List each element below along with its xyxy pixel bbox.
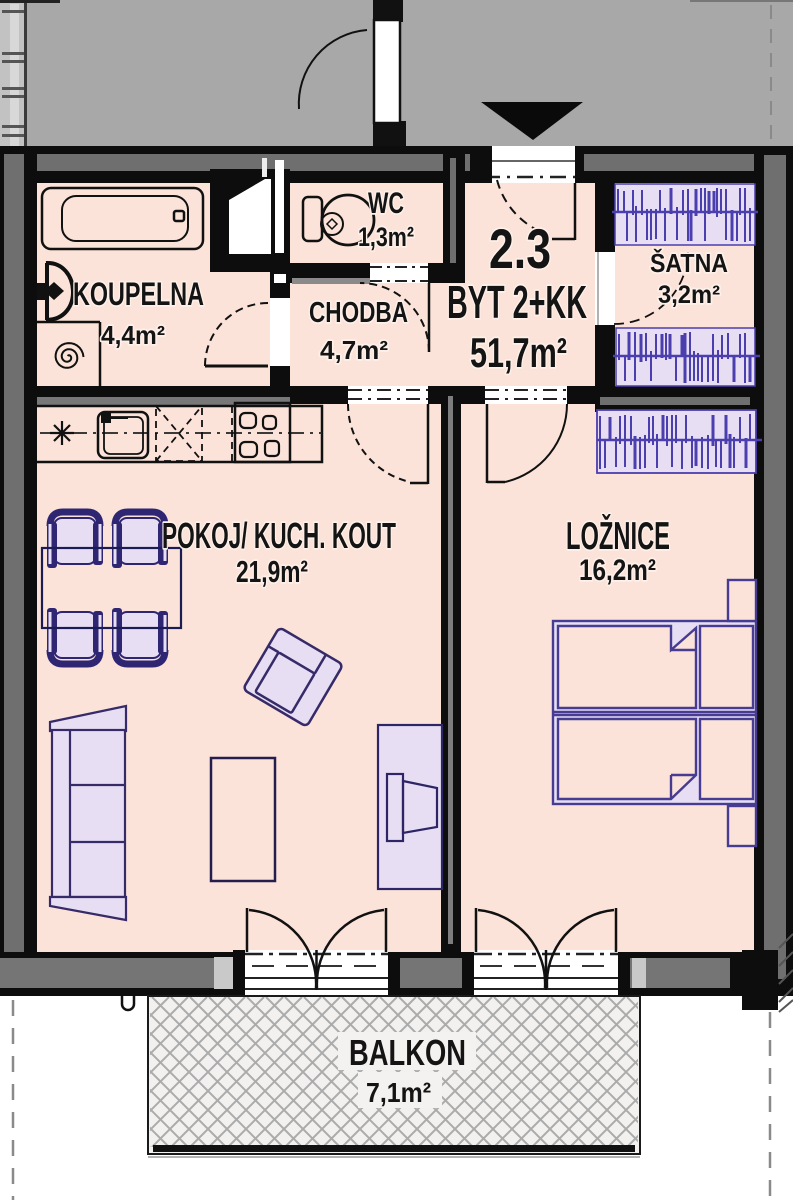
svg-text:16,2m²: 16,2m² — [579, 554, 656, 587]
svg-text:LOŽNICE: LOŽNICE — [566, 514, 670, 558]
svg-text:BYT 2+KK: BYT 2+KK — [447, 276, 587, 328]
svg-text:4,7m²: 4,7m² — [320, 335, 388, 365]
svg-text:51,7m²: 51,7m² — [470, 329, 567, 376]
svg-text:2.3: 2.3 — [489, 217, 551, 280]
svg-text:CHODBA: CHODBA — [309, 297, 408, 329]
svg-text:POKOJ/ KUCH. KOUT: POKOJ/ KUCH. KOUT — [162, 515, 396, 556]
svg-text:WC: WC — [368, 187, 404, 220]
svg-text:ŠATNA: ŠATNA — [650, 248, 728, 278]
svg-text:21,9m²: 21,9m² — [236, 554, 308, 589]
svg-text:BALKON: BALKON — [349, 1032, 466, 1073]
svg-text:1,3m²: 1,3m² — [358, 222, 414, 252]
svg-text:3,2m²: 3,2m² — [658, 281, 720, 309]
svg-text:4,4m²: 4,4m² — [101, 320, 165, 350]
svg-text:KOUPELNA: KOUPELNA — [73, 276, 204, 312]
svg-text:7,1m²: 7,1m² — [366, 1077, 431, 1108]
